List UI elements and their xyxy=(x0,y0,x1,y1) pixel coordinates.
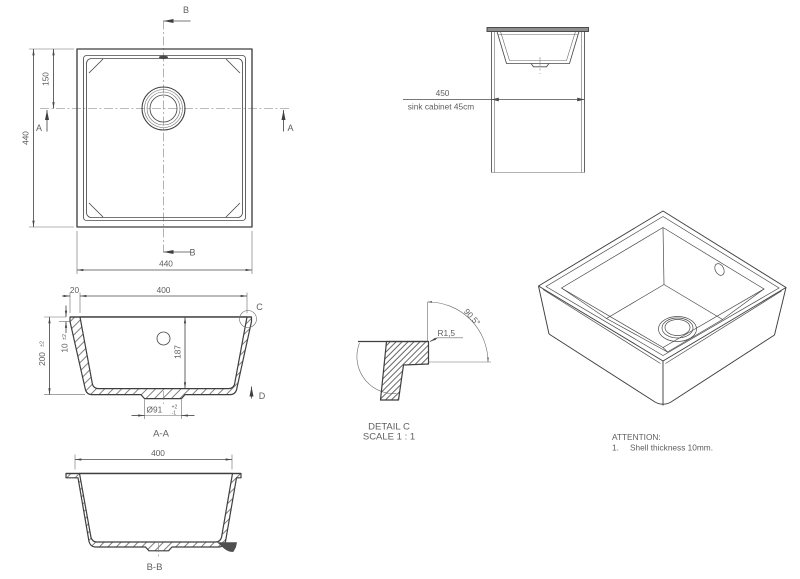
dim-shell-thickness-label: 10 xyxy=(60,343,70,353)
angle-label: 90.5° xyxy=(462,306,483,327)
section-bb-label: B-B xyxy=(147,562,163,573)
section-aa-cavity xyxy=(80,317,247,389)
cabinet-note-label: sink cabinet 45cm xyxy=(408,102,474,112)
dim-shell-tolerance-label: ±2 xyxy=(62,334,68,340)
detail-c-marker-label: C xyxy=(256,302,263,312)
bowl-floor xyxy=(607,285,723,353)
bowl-top-edge xyxy=(87,59,243,218)
rim-underside-edge xyxy=(666,291,782,364)
detail-c-scale: SCALE 1 : 1 xyxy=(363,432,415,443)
dim-cabinet-width-label: 450 xyxy=(436,88,450,98)
sink-outer-edge xyxy=(77,49,252,227)
radius-leader xyxy=(430,338,438,342)
dim-inner-depth-label: 187 xyxy=(173,345,183,359)
dim-arrow xyxy=(492,98,499,102)
section-marker-a-left-label: A xyxy=(36,123,42,133)
body-edge-left xyxy=(539,286,550,334)
sink-bowl-outer xyxy=(497,32,579,64)
attention-title: ATTENTION: xyxy=(612,432,661,442)
sink-rim-inner-edge xyxy=(84,56,246,221)
corner-chamfer xyxy=(89,59,103,73)
countertop xyxy=(487,28,589,32)
top-view: 440 150 440 B B A A xyxy=(21,5,294,274)
attention-item-number: 1. xyxy=(612,443,619,453)
section-bb-cavity xyxy=(80,474,233,543)
overflow-slot xyxy=(159,56,168,59)
dim-bowl-width-label: 400 xyxy=(151,448,165,458)
section-marker-b-top-label: B xyxy=(183,5,189,15)
rim-inner-line xyxy=(546,217,779,356)
body-bottom-edge xyxy=(549,334,775,404)
detail-c-view: 90.5° R1,5 DETAIL C SCALE 1 : 1 xyxy=(357,302,491,443)
drain-ellipse xyxy=(662,318,693,338)
bowl-top-edge xyxy=(562,228,765,348)
rim-outer-edge xyxy=(539,211,787,361)
dim-overall-height-label: 440 xyxy=(21,131,31,145)
section-marker-b-bottom-label: B xyxy=(189,248,195,258)
attention-item-text: Shell thickness 10mm. xyxy=(630,443,713,453)
drain-inner-ellipse xyxy=(665,320,690,336)
drawing-canvas: 440 150 440 B B A A 450 sink xyxy=(0,0,800,579)
dim-drain-diameter-label: Ø91 xyxy=(147,405,163,415)
section-aa: 20 400 200 ±2 10 ±2 187 C D Ø91 +2 -1 A-… xyxy=(37,285,266,440)
isometric-view xyxy=(539,211,787,406)
attention-note: ATTENTION: 1. Shell thickness 10mm. xyxy=(612,432,713,453)
bowl-corner-edge xyxy=(663,228,664,285)
dim-overall-width-label: 440 xyxy=(159,259,173,269)
section-bb: 400 B-B xyxy=(66,448,241,573)
dim-bowl-width-label: 400 xyxy=(157,285,171,295)
dim-depth-tolerance-label: ±2 xyxy=(40,341,46,347)
cabinet-view: 450 sink cabinet 45cm xyxy=(403,28,589,173)
drain-tolerance-minus-label: -1 xyxy=(172,410,177,416)
dim-overall-depth-label: 200 xyxy=(37,352,47,366)
direction-marker-d-label: D xyxy=(259,391,266,401)
dim-arrow xyxy=(577,98,584,102)
section-aa-label: A-A xyxy=(153,429,170,440)
sink-bowl-inner xyxy=(501,32,576,61)
section-marker-a-right-label: A xyxy=(287,123,293,133)
technical-drawing-page: 440 150 440 B B A A 450 sink xyxy=(0,0,800,579)
rim-underside-edge xyxy=(543,290,661,364)
dim-rim-width-label: 20 xyxy=(70,285,80,295)
corner-chamfer xyxy=(226,203,240,217)
corner-chamfer xyxy=(89,203,103,217)
corner-chamfer xyxy=(226,59,240,73)
overflow-hole xyxy=(713,262,726,277)
detail-rim-section xyxy=(381,342,429,401)
radius-label: R1,5 xyxy=(438,328,456,338)
dim-drain-offset-label: 150 xyxy=(41,72,51,86)
